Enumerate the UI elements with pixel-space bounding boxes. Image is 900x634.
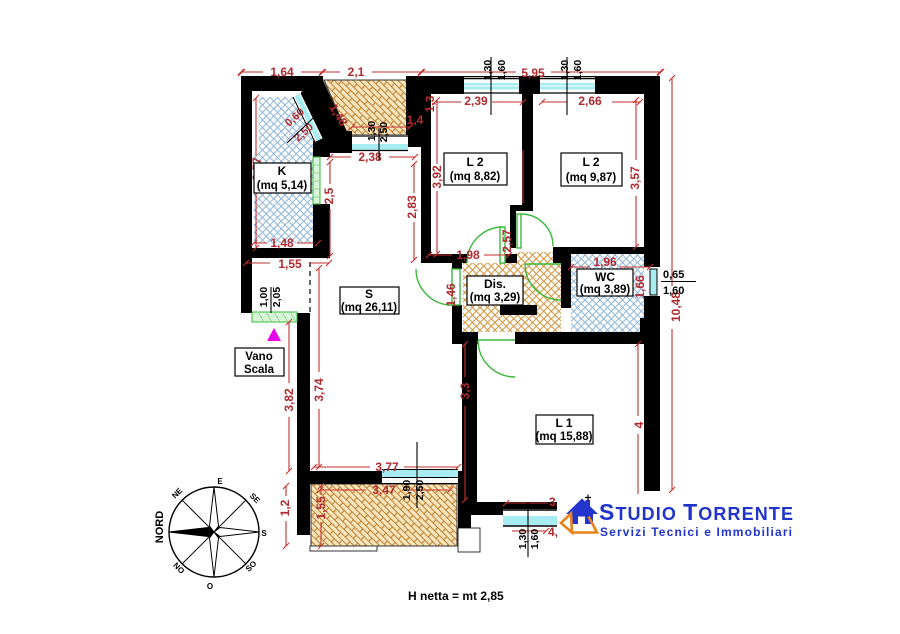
svg-text:1,55: 1,55 [278,257,302,271]
svg-text:1,98: 1,98 [456,248,480,262]
svg-text:1,60: 1,60 [529,529,541,550]
svg-text:(mq 26,11): (mq 26,11) [341,302,397,314]
svg-text:3,3: 3,3 [458,382,472,399]
svg-text:2,1: 2,1 [348,65,365,79]
svg-text:2,50: 2,50 [378,122,390,143]
svg-text:1,46: 1,46 [444,283,458,307]
svg-text:E: E [217,477,223,486]
svg-text:1,4: 1,4 [407,113,424,127]
svg-text:5,95: 5,95 [521,66,545,80]
svg-text:1,30: 1,30 [482,60,494,81]
svg-text:1,60: 1,60 [496,60,508,81]
svg-text:S: S [365,287,373,301]
svg-text:4,: 4, [548,525,558,539]
svg-text:1,55: 1,55 [314,496,328,520]
svg-text:1,30: 1,30 [517,529,529,550]
svg-text:(mq 15,88): (mq 15,88) [536,431,593,443]
svg-text:Scala: Scala [244,364,275,376]
svg-text:(mq 3,89): (mq 3,89) [580,284,631,296]
svg-text:K: K [278,164,287,178]
svg-text:L 1: L 1 [555,416,572,430]
svg-text:1,96: 1,96 [593,255,617,269]
svg-text:3,92: 3,92 [430,165,444,189]
svg-text:1,3: 1,3 [423,95,437,112]
svg-text:1,60: 1,60 [572,60,584,81]
svg-text:1,2: 1,2 [278,499,292,516]
svg-text:1,00: 1,00 [258,287,270,308]
svg-text:1,64: 1,64 [270,65,294,79]
svg-text:2,83: 2,83 [405,195,419,219]
svg-text:(mq 5,14): (mq 5,14) [257,180,308,192]
svg-text:(mq 9,87): (mq 9,87) [566,172,617,184]
svg-text:2,57: 2,57 [500,229,514,253]
svg-text:Dis.: Dis. [484,277,506,291]
svg-text:2,5: 2,5 [322,187,336,204]
svg-text:0,65: 0,65 [663,269,684,281]
svg-text:2,38: 2,38 [358,150,382,164]
svg-text:NORD: NORD [154,511,166,543]
svg-text:3,82: 3,82 [282,388,296,412]
svg-text:L 2: L 2 [582,155,599,169]
svg-text:2,05: 2,05 [271,287,283,308]
svg-text:1,30: 1,30 [559,60,571,81]
svg-text:(mq 8,82): (mq 8,82) [450,171,501,183]
svg-text:1,30: 1,30 [366,121,378,142]
svg-text:4: 4 [632,421,646,428]
svg-text:1,48: 1,48 [270,236,294,250]
svg-text:3,47: 3,47 [372,483,396,497]
svg-text:1,90: 1,90 [401,480,413,501]
svg-text:WC: WC [595,270,615,284]
svg-text:2,66: 2,66 [578,94,602,108]
svg-text:2,39: 2,39 [464,94,488,108]
svg-text:S: S [261,529,267,538]
svg-text:1,66: 1,66 [633,275,647,299]
svg-text:3,57: 3,57 [628,166,642,190]
svg-text:L 2: L 2 [466,155,483,169]
svg-text:2,50: 2,50 [414,480,426,501]
svg-text:(mq 3,29): (mq 3,29) [470,292,521,304]
svg-text:O: O [207,582,213,591]
svg-text:3,74: 3,74 [312,378,326,402]
svg-text:H netta = mt 2,85: H netta = mt 2,85 [408,589,504,603]
svg-text:3,77: 3,77 [375,460,399,474]
svg-text:1,60: 1,60 [663,285,684,297]
svg-text:Servizi Tecnici e Immobiliari: Servizi Tecnici e Immobiliari [600,525,792,539]
svg-text:Vano: Vano [245,351,272,363]
